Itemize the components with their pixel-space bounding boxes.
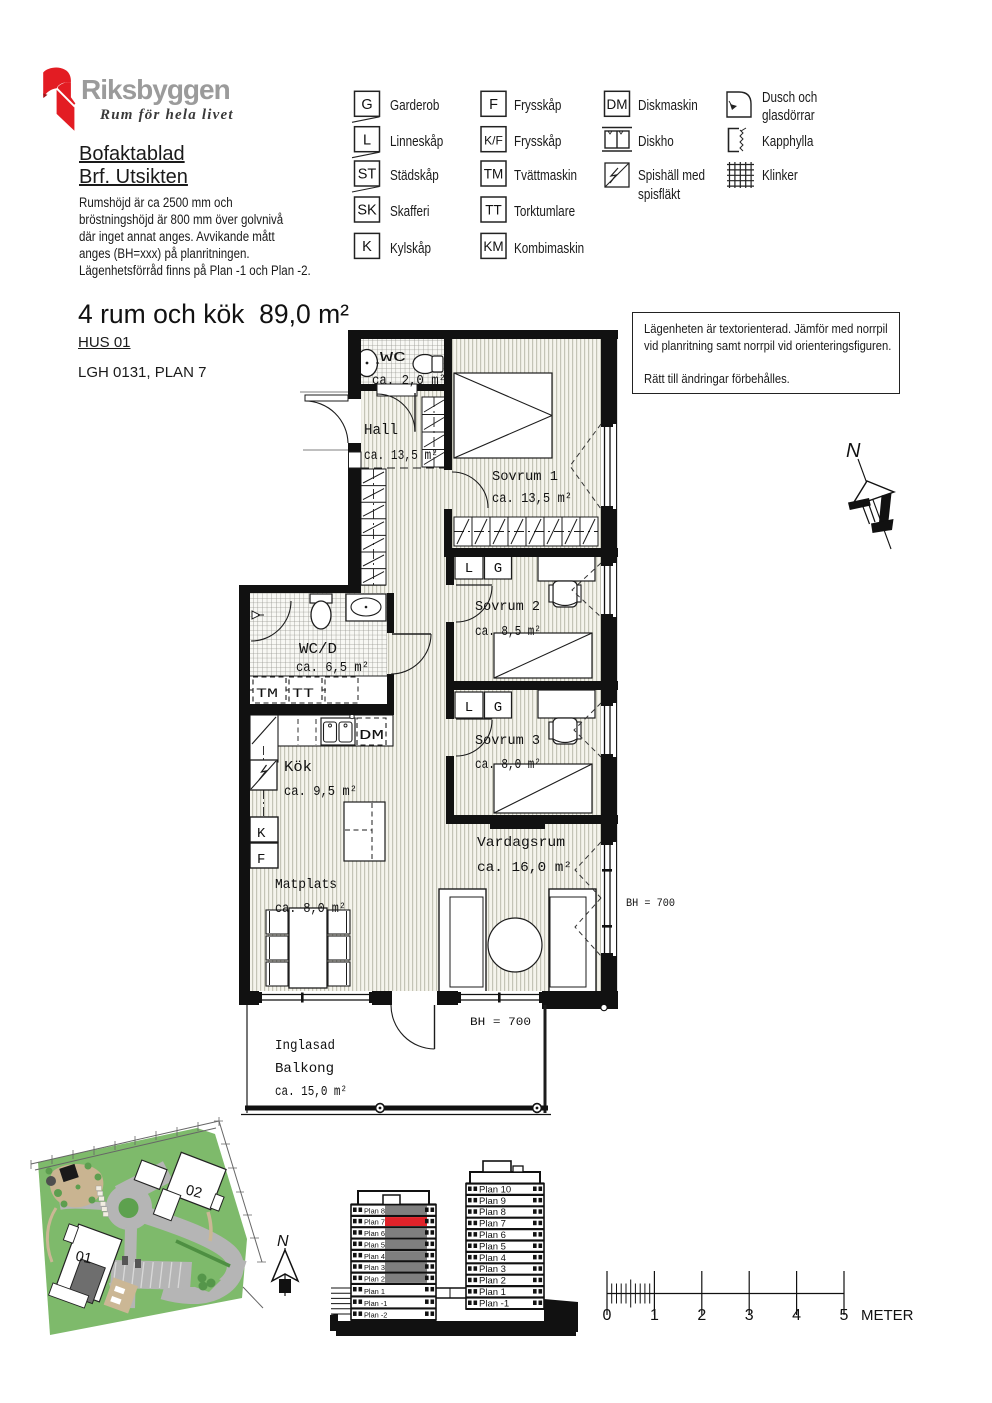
svg-text:2: 2 bbox=[697, 1307, 706, 1324]
svg-text:TM: TM bbox=[256, 686, 278, 701]
svg-text:Plan 3: Plan 3 bbox=[364, 1263, 385, 1272]
svg-text:Balkong: Balkong bbox=[275, 1061, 334, 1077]
svg-text:Plan 5: Plan 5 bbox=[364, 1240, 385, 1249]
svg-text:Plan 2: Plan 2 bbox=[364, 1274, 385, 1283]
svg-text:WC/D: WC/D bbox=[299, 641, 337, 658]
svg-text:ca. 9,5 m²: ca. 9,5 m² bbox=[284, 785, 357, 800]
svg-text:ca. 13,5 m²: ca. 13,5 m² bbox=[492, 492, 572, 507]
svg-text:5: 5 bbox=[840, 1307, 849, 1324]
svg-text:K: K bbox=[362, 239, 372, 255]
svg-text:Plan 8: Plan 8 bbox=[364, 1206, 385, 1215]
svg-text:KM: KM bbox=[483, 239, 503, 254]
svg-text:Plan 5: Plan 5 bbox=[479, 1241, 506, 1252]
svg-text:Plan 4: Plan 4 bbox=[364, 1252, 385, 1261]
svg-text:ST: ST bbox=[358, 167, 377, 183]
svg-text:ca. 13,5 m²: ca. 13,5 m² bbox=[364, 449, 438, 464]
svg-text:Inglasad: Inglasad bbox=[275, 1038, 335, 1054]
svg-text:4: 4 bbox=[792, 1307, 801, 1324]
svg-text:ca. 6,5 m²: ca. 6,5 m² bbox=[296, 661, 369, 676]
svg-text:01: 01 bbox=[74, 1248, 93, 1267]
svg-text:G: G bbox=[494, 561, 502, 577]
svg-text:TM: TM bbox=[484, 167, 504, 182]
svg-text:Plan 3: Plan 3 bbox=[479, 1264, 506, 1275]
svg-text:BH = 700: BH = 700 bbox=[470, 1017, 531, 1029]
svg-text:N: N bbox=[277, 1233, 289, 1250]
svg-text:Plan 10: Plan 10 bbox=[479, 1184, 511, 1195]
svg-text:F: F bbox=[257, 852, 265, 868]
svg-text:TT: TT bbox=[485, 203, 502, 218]
svg-text:ca. 15,0 m²: ca. 15,0 m² bbox=[275, 1085, 347, 1100]
svg-text:DM: DM bbox=[607, 97, 628, 112]
svg-text:3: 3 bbox=[745, 1307, 754, 1324]
svg-text:ca. 2,0 m²: ca. 2,0 m² bbox=[372, 374, 446, 389]
svg-text:TT: TT bbox=[292, 686, 314, 701]
svg-text:Plan 1: Plan 1 bbox=[479, 1287, 506, 1298]
svg-text:G: G bbox=[361, 97, 372, 113]
svg-text:BH = 700: BH = 700 bbox=[626, 898, 675, 910]
svg-text:Plan -2: Plan -2 bbox=[364, 1310, 387, 1319]
svg-text:Plan 7: Plan 7 bbox=[479, 1219, 506, 1230]
svg-text:Plan 7: Plan 7 bbox=[364, 1218, 385, 1227]
svg-text:METER: METER bbox=[861, 1307, 914, 1324]
svg-text:Hall: Hall bbox=[364, 422, 398, 439]
svg-text:N: N bbox=[846, 440, 861, 462]
svg-text:Plan 1: Plan 1 bbox=[364, 1287, 385, 1296]
svg-text:Plan -1: Plan -1 bbox=[479, 1299, 509, 1310]
svg-text:Kök: Kök bbox=[284, 759, 312, 776]
svg-text:Plan 9: Plan 9 bbox=[479, 1196, 506, 1207]
svg-text:DM: DM bbox=[359, 729, 384, 744]
svg-text:WC: WC bbox=[380, 350, 406, 366]
svg-text:Plan 8: Plan 8 bbox=[479, 1207, 506, 1218]
svg-text:K: K bbox=[257, 826, 266, 842]
svg-text:Sovrum 2: Sovrum 2 bbox=[475, 599, 540, 615]
svg-text:Matplats: Matplats bbox=[275, 877, 337, 893]
svg-text:K/F: K/F bbox=[484, 133, 503, 147]
svg-text:G: G bbox=[494, 700, 502, 716]
svg-text:ca. 8,0 m²: ca. 8,0 m² bbox=[475, 758, 541, 773]
svg-text:Plan -1: Plan -1 bbox=[364, 1299, 387, 1308]
svg-text:Plan 6: Plan 6 bbox=[479, 1230, 506, 1241]
svg-text:L: L bbox=[465, 700, 473, 716]
svg-text:ca. 8,0 m²: ca. 8,0 m² bbox=[275, 902, 346, 917]
svg-text:1: 1 bbox=[650, 1307, 659, 1324]
svg-text:Sovrum 3: Sovrum 3 bbox=[475, 733, 540, 749]
svg-text:Plan 4: Plan 4 bbox=[479, 1253, 506, 1264]
svg-text:Plan 2: Plan 2 bbox=[479, 1276, 506, 1287]
svg-text:L: L bbox=[465, 561, 473, 577]
svg-text:Sovrum 1: Sovrum 1 bbox=[492, 469, 558, 485]
svg-text:SK: SK bbox=[357, 203, 377, 219]
svg-text:F: F bbox=[489, 97, 498, 113]
svg-text:ca. 8,5 m²: ca. 8,5 m² bbox=[475, 625, 541, 640]
svg-text:L: L bbox=[363, 132, 371, 148]
svg-text:ca. 16,0 m²: ca. 16,0 m² bbox=[477, 861, 572, 876]
svg-text:0: 0 bbox=[603, 1307, 612, 1324]
svg-text:Plan 6: Plan 6 bbox=[364, 1229, 385, 1238]
svg-text:Vardagsrum: Vardagsrum bbox=[477, 835, 565, 851]
